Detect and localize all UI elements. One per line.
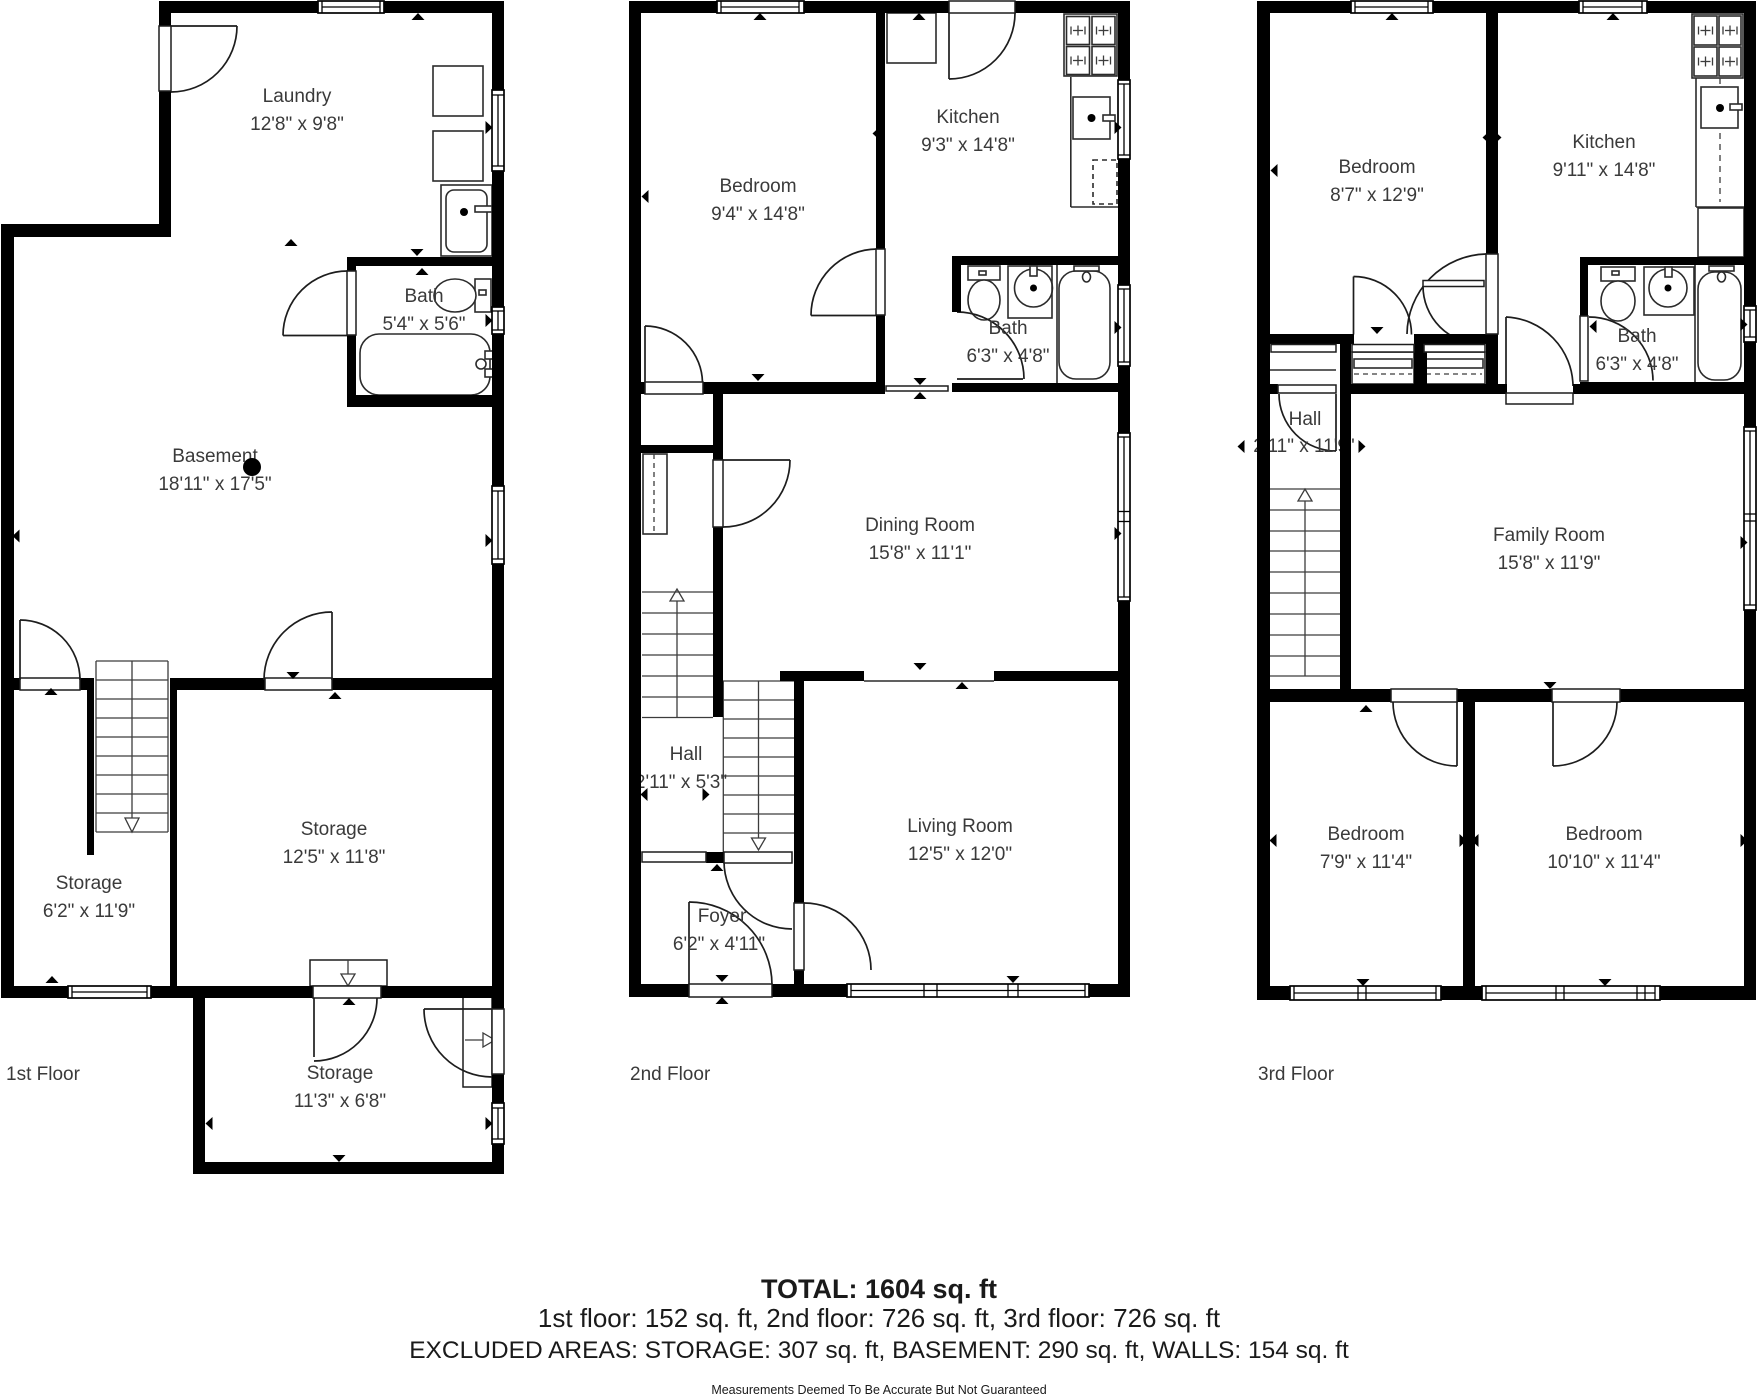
svg-text:Bedroom: Bedroom (1565, 824, 1642, 845)
svg-text:9'4" x 14'8": 9'4" x 14'8" (711, 204, 805, 225)
svg-text:6'3" x 4'8": 6'3" x 4'8" (966, 346, 1049, 367)
svg-text:15'8" x 11'1": 15'8" x 11'1" (869, 543, 972, 564)
svg-text:9'3" x 14'8": 9'3" x 14'8" (921, 135, 1015, 156)
svg-text:12'5" x 11'8": 12'5" x 11'8" (283, 847, 386, 868)
svg-text:Family Room: Family Room (1493, 525, 1605, 546)
svg-text:1st floor: 152 sq. ft, 2nd flo: 1st floor: 152 sq. ft, 2nd floor: 726 sq… (538, 1303, 1221, 1333)
svg-text:Dining Room: Dining Room (865, 515, 975, 536)
svg-text:Measurements Deemed To Be Accu: Measurements Deemed To Be Accurate But N… (711, 1383, 1046, 1396)
svg-text:Living Room: Living Room (907, 816, 1013, 837)
svg-text:Foyer: Foyer (698, 906, 747, 927)
svg-text:Bath: Bath (404, 286, 443, 307)
svg-text:Storage: Storage (307, 1063, 374, 1084)
svg-text:Bath: Bath (1617, 326, 1656, 347)
svg-text:5'4" x 5'6": 5'4" x 5'6" (382, 314, 465, 335)
svg-text:Storage: Storage (301, 819, 368, 840)
svg-text:TOTAL: 1604 sq. ft: TOTAL: 1604 sq. ft (761, 1274, 997, 1304)
svg-text:Bedroom: Bedroom (1327, 824, 1404, 845)
svg-text:18'11" x 17'5": 18'11" x 17'5" (158, 474, 271, 495)
svg-text:12'5" x 12'0": 12'5" x 12'0" (908, 844, 1012, 865)
svg-text:Bedroom: Bedroom (1338, 157, 1415, 178)
svg-text:12'8" x 9'8": 12'8" x 9'8" (250, 114, 344, 135)
svg-text:15'8" x 11'9": 15'8" x 11'9" (1498, 553, 1601, 574)
svg-text:EXCLUDED AREAS: STORAGE: 307 s: EXCLUDED AREAS: STORAGE: 307 sq. ft, BAS… (409, 1337, 1349, 1364)
svg-text:10'10" x 11'4": 10'10" x 11'4" (1547, 852, 1660, 873)
svg-text:6'2" x 4'11": 6'2" x 4'11" (673, 934, 765, 955)
svg-text:2nd Floor: 2nd Floor (630, 1064, 711, 1085)
svg-text:3rd Floor: 3rd Floor (1258, 1064, 1335, 1085)
svg-text:Kitchen: Kitchen (936, 107, 999, 128)
svg-text:7'9" x 11'4": 7'9" x 11'4" (1320, 852, 1412, 873)
svg-text:11'3" x 6'8": 11'3" x 6'8" (294, 1091, 386, 1112)
svg-text:Hall: Hall (670, 744, 703, 765)
svg-text:Hall: Hall (1289, 409, 1322, 430)
svg-text:8'7" x 12'9": 8'7" x 12'9" (1330, 185, 1424, 206)
svg-text:6'3" x 4'8": 6'3" x 4'8" (1595, 354, 1678, 375)
svg-text:Laundry: Laundry (263, 86, 332, 107)
svg-text:6'2" x 11'9": 6'2" x 11'9" (43, 901, 135, 922)
svg-text:9'11" x 14'8": 9'11" x 14'8" (1553, 160, 1656, 181)
svg-text:Kitchen: Kitchen (1572, 132, 1635, 153)
svg-text:Storage: Storage (56, 873, 123, 894)
svg-text:2'11" x 5'3": 2'11" x 5'3" (635, 772, 727, 793)
svg-text:1st Floor: 1st Floor (6, 1064, 81, 1085)
svg-text:Bath: Bath (988, 318, 1027, 339)
svg-text:Bedroom: Bedroom (719, 176, 796, 197)
